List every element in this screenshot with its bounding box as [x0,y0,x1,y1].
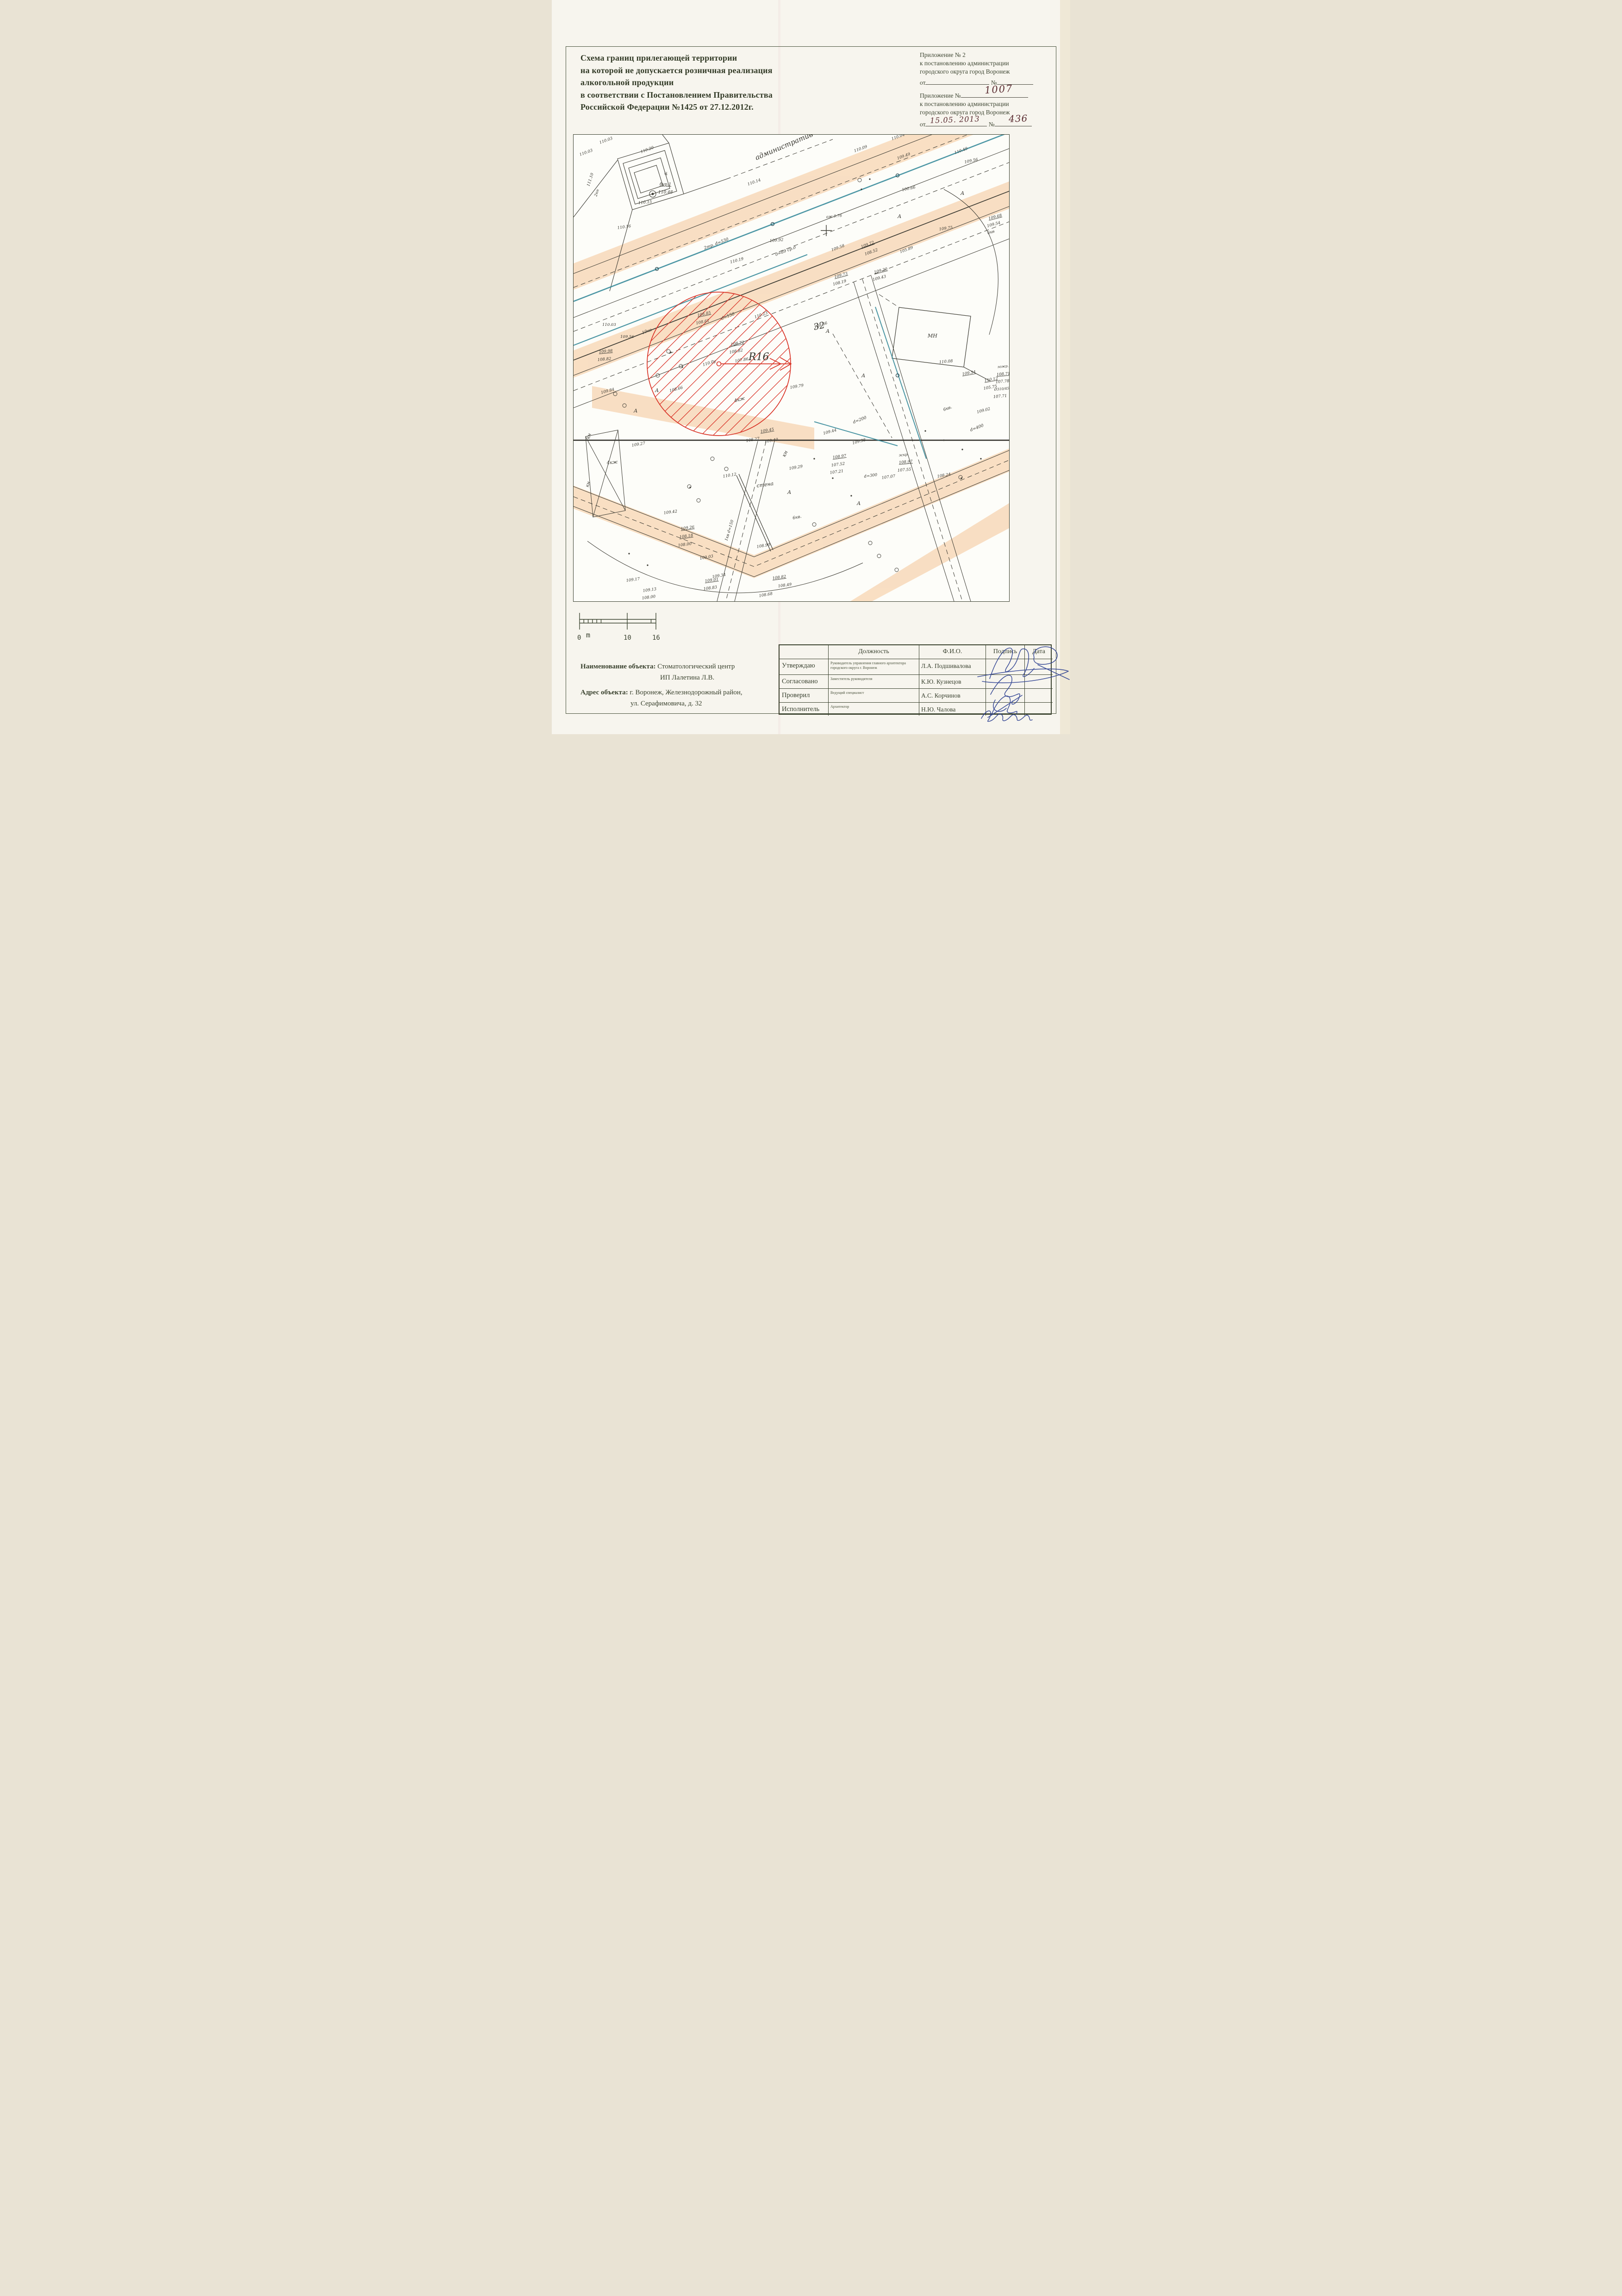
appendix1-blanks-row: от № [920,78,1047,87]
map-elevation-label: стена [756,480,774,489]
map-elevation-label: ож 9.76 [826,213,842,219]
date-cell [1025,703,1053,716]
from-label: от [920,121,925,128]
map-elevation-label: 108.49 [778,582,792,589]
grid-cross [821,225,832,236]
map-elevation-label: 109.42 [663,509,678,516]
from-label: от [920,79,925,86]
table-row-role: Исполнитель [780,703,829,716]
date-blank-line [925,78,989,85]
appendix2-date-row: от № 15.05. 2013 436 [920,119,1047,129]
map-elevation-label: 110.49 [954,146,969,156]
handwritten-appendix-number: 1007 [984,84,1013,94]
date-cell [1025,659,1053,675]
map-elevation-label: d=300 [864,473,878,479]
scale-mid-label: 10 [624,634,631,642]
map-elevation-label: ц [664,171,668,176]
signature-cell [986,659,1025,675]
map-elevation-label: 109.43 [872,275,886,282]
map-elevation-label: 108.71 [996,371,1009,377]
object-address-label: Адрес объекта: [580,689,628,696]
map-elevation-label: 108.66 [669,385,684,393]
map-elevation-label: 109.38 [852,437,867,446]
map-elevation-label: 107.55 [897,467,911,473]
title-line: на которой не допускается розничная реал… [580,64,881,77]
table-header-empty [780,645,829,659]
signature-cell [986,675,1025,689]
map-elevation-label: 107.21 [830,469,844,475]
map-elevation-label: d=400 [969,423,984,432]
map-elevation-label: 108.83 [703,585,717,592]
map-elevation-label: 108.68 [759,592,774,599]
table-row-role: Согласовано [780,675,829,689]
map-elevation-label: 4кж [733,396,746,404]
map-elevation-label: 109.17 [626,577,640,583]
map-elevation-label: 100.66 [902,185,917,193]
handwritten-resolution-number: 436 [1009,114,1028,123]
map-elevation-label: А [861,373,865,379]
map-elevation-label: 110.03 [602,323,616,327]
map-elevation-label: 109.44 [823,428,837,436]
map-elevation-label: 110.03 [599,136,613,145]
scan-edge-strip [1060,0,1070,734]
map-elevation-label: кн [585,481,591,488]
zone-center-point [717,362,721,366]
map-elevation-label: 109.56 [964,157,979,165]
appendix2-number-row: Приложение № 1007 [920,91,1047,100]
map-elevation-label: 4кж [606,460,618,466]
title-line: в соответствии с Постановлением Правител… [580,89,881,101]
scale-unit-label: m [586,631,590,639]
number-label: № [989,121,995,128]
table-header-name: Ф.И.О. [919,645,986,659]
map-elevation-label: 110.19 [730,256,744,265]
map-elevation-label: А [787,489,791,495]
map-elevation-label: 109.27 [631,441,646,448]
radius-label: R16 [748,351,769,363]
appendix2-line2: к постановлению администрации [920,100,1047,108]
scanned-document-sheet: Схема границ прилегающей территории на к… [552,0,1070,734]
object-address-line: Адрес объекта: г. Воронеж, Железнодорожн… [580,689,742,697]
table-row-position: Архитектор [829,703,919,716]
map-elevation-label: 110.20 [640,145,655,155]
map-elevation-label: 108.90 [756,543,771,549]
map-elevation-label: МН [927,333,937,339]
map-elevation-label: 109.79 [790,383,805,390]
object-address-value: г. Воронеж, Железнодорожный район, [630,689,742,696]
title-line: алкогольной продукции [580,76,881,89]
table-row-position: Ведущий специалист [829,689,919,703]
map-elevation-label: 109.30 [873,267,888,275]
map-elevation-label: 108.82 [729,348,743,355]
map-elevation-label: 109.54 [986,221,1001,229]
map-elevation-label: 109.01 [705,577,719,584]
map-elevation-label: 110.16 [617,224,631,231]
map-elevation-label: 107.52 [831,462,845,468]
map-elevation-label: 107.86 [735,357,749,364]
map-elevation-label: 108.97 [832,454,847,460]
table-row-name: Л.А. Подшивалова [919,659,986,675]
map-elevation-label: кн [586,433,592,440]
map-elevation-label: зожр. [997,364,1009,369]
title-line: Схема границ прилегающей территории [580,52,881,64]
object-address-line2: ул. Серафимовича, д. 32 [630,700,702,708]
map-elevation-label: А [825,328,830,334]
table-row-position: Заместитель руководителя [829,675,919,689]
scale-bar: 0 m 10 16 [575,609,668,645]
map-elevation-label: 109.26 [680,525,695,531]
map-elevation-label: 109.02 [976,407,991,415]
appendix1-line3: городского округа город Воронеж [920,68,1047,76]
appendix2-label: Приложение № [920,92,961,99]
building-mn [892,307,990,381]
map-elevation-label: административ [754,135,815,162]
map-elevation-label: 109.29 [789,464,804,471]
site-plan-map: R16 32 110.03110.20110.03цбур.1110.48110… [573,134,1010,602]
map-elevation-label: д=89 ср.д [774,245,797,257]
map-elevation-label: 109.13 [643,587,657,593]
map-elevation-label: 110.12 [723,472,737,479]
date-cell [1025,675,1053,689]
object-name-line2: ИП Лалетина Л.В. [660,674,714,682]
document-title: Схема границ прилегающей территории на к… [580,52,881,113]
map-elevation-label: эскр. [898,452,909,457]
map-elevation-label: А [655,387,659,393]
map-elevation-label: 108.19 [832,279,847,287]
object-name-line: Наименование объекта: Стоматологический … [580,663,735,671]
map-elevation-label: 108.27 [746,437,761,443]
appendix1-line2: к постановлению администрации [920,59,1047,68]
table-row-name: А.С. Корчинов [919,689,986,703]
table-row-role: Проверил [780,689,829,703]
handwritten-date: 15.05. 2013 [930,115,980,125]
object-name-value: Стоматологический центр [657,663,735,670]
table-row-name: К.Ю. Кузнецов [919,675,986,689]
map-elevation-label: 110.48 [658,190,673,195]
table-header-date: Дата [1025,645,1053,659]
appendix1-line1: Приложение № 2 [920,51,1047,59]
table-row-name: Н.Ю. Чалова [919,703,986,716]
map-elevation-label: 6кв. [792,514,802,521]
map-elevation-label: кн [781,449,789,458]
map-elevation-label: А [633,408,637,414]
signature-cell [986,703,1025,716]
map-elevation-label: 109.54 [962,370,976,377]
map-elevation-label: 107.07 [881,474,896,480]
map-elevation-label: 110.03 [579,148,593,157]
appendix-block-1: Приложение № 2 к постановлению администр… [920,51,1047,87]
map-elevation-label: 1кв d=150 [724,519,735,542]
approval-table: Должность Ф.И.О. Подпись Дата Утверждаю … [779,644,1052,715]
map-elevation-label: А [856,500,861,506]
map-elevation-label: 110.08 [939,359,953,365]
map-elevation-label: 111.10 [586,172,595,187]
map-elevation-label: А [960,190,964,196]
map-elevation-label: 6кв. [943,405,953,412]
appendix-block-2: Приложение № 1007 к постановлению админи… [920,91,1047,129]
map-elevation-label: 110.14 [747,178,761,187]
table-header-position: Должность [829,645,919,659]
signature-cell [986,689,1025,703]
map-elevation-label: бур.1 [660,182,671,187]
map-elevation-label: 2тр. d=530 [703,237,730,251]
table-header-signature: Подпись [986,645,1025,659]
map-elevation-label: 107.71 [993,393,1007,399]
map-elevation-label: 110.15 [638,200,652,206]
scale-zero-label: 0 [577,634,581,642]
map-elevation-label: 109.92 [769,237,784,243]
table-row-role: Утверждаю [780,659,829,675]
topographic-map-drawing: R16 32 110.03110.20110.03цбур.1110.48110… [574,135,1009,601]
map-elevation-label: 108.82 [772,574,786,581]
scale-end-label: 16 [652,634,660,642]
map-elevation-label: А [897,213,901,219]
table-row-position: Руководитель управления главного архитек… [829,659,919,675]
map-elevation-label: 6кв [987,229,995,236]
map-elevation-label: 110.23 [754,311,768,320]
map-elevation-label: 109.56 [620,335,634,339]
object-name-label: Наименование объекта: [580,663,655,670]
map-elevation-label: 108.00 [642,594,656,601]
title-line: Российской Федерации №1425 от 27.12.2012… [580,101,881,113]
date-cell [1025,689,1053,703]
map-elevation-label: Ø310/45 [993,386,1009,392]
map-elevation-label: 107.78 [995,379,1009,385]
map-elevation-label: d=200 [852,415,867,424]
